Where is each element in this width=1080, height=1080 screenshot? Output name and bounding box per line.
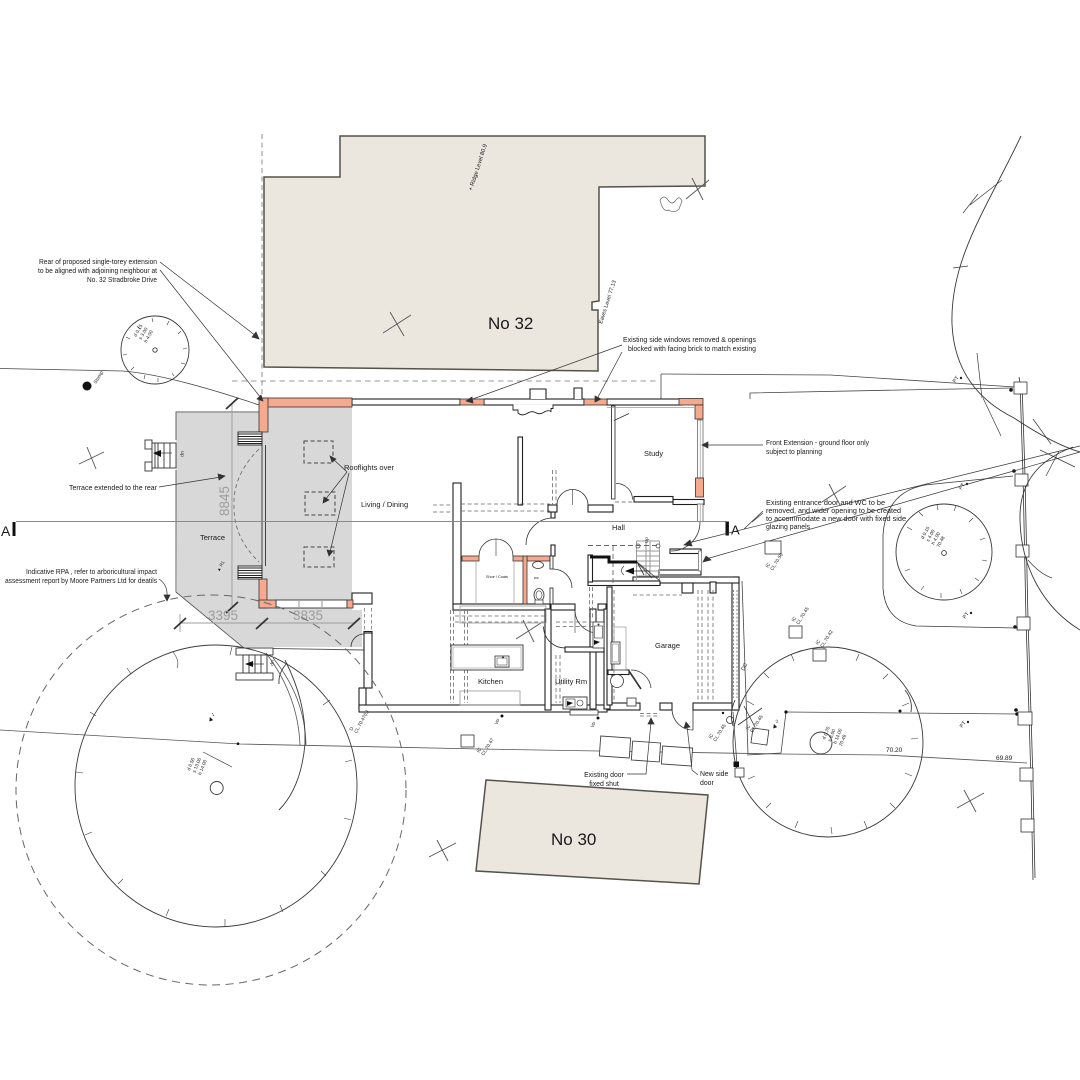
svg-text:Rooflights over: Rooflights over	[344, 463, 395, 472]
svg-text:door: door	[700, 780, 714, 787]
svg-text:subject to planning: subject to planning	[766, 449, 822, 456]
svg-text:70.20: 70.20	[886, 747, 903, 754]
svg-text:No 32: No 32	[488, 314, 533, 333]
svg-text:Kitchen: Kitchen	[478, 677, 503, 686]
svg-text:3395: 3395	[208, 608, 238, 623]
svg-text:Living / Dining: Living / Dining	[361, 500, 408, 509]
svg-text:Up: Up	[180, 451, 185, 457]
svg-text:No 30: No 30	[551, 830, 596, 849]
svg-text:No. 32 Stradbroke Drive: No. 32 Stradbroke Drive	[87, 277, 157, 284]
svg-text:69.89: 69.89	[996, 755, 1013, 762]
svg-text:Shoe / Coats: Shoe / Coats	[486, 575, 508, 579]
svg-text:blocked with facing brick to m: blocked with facing brick to match exist…	[628, 346, 756, 353]
svg-text:Up: Up	[644, 537, 649, 543]
svg-text:Terrace extended to the rear: Terrace extended to the rear	[69, 485, 158, 492]
svg-text:to be aligned with adjoining n: to be aligned with adjoining neighbour a…	[38, 268, 157, 275]
svg-text:Indicative RPA , refer to arbo: Indicative RPA , refer to arboricultural…	[26, 569, 157, 576]
svg-text:Study: Study	[644, 449, 663, 458]
svg-text:assessment report by Moore Par: assessment report by Moore Partners Ltd …	[5, 578, 158, 585]
svg-text:New side: New side	[700, 771, 729, 778]
svg-text:Existing door: Existing door	[584, 772, 625, 779]
svg-text:Front Extension - ground floor: Front Extension - ground floor only	[766, 440, 870, 447]
svg-text:wc: wc	[534, 576, 539, 580]
svg-text:Terrace: Terrace	[200, 533, 225, 542]
svg-text:A: A	[1, 523, 11, 539]
svg-text:Rear of proposed single-torey: Rear of proposed single-torey extension	[39, 259, 157, 266]
svg-text:Existing side windows removed: Existing side windows removed & openings	[623, 337, 757, 344]
svg-text:Hall: Hall	[612, 523, 625, 532]
svg-text:Utility Rm: Utility Rm	[555, 677, 587, 686]
svg-text:glazing panels: glazing panels	[766, 524, 811, 531]
svg-text:8845: 8845	[217, 486, 232, 516]
svg-text:Existing entrance door and WC: Existing entrance door and WC to be	[766, 500, 885, 507]
svg-text:A: A	[731, 523, 740, 538]
svg-text:Garage: Garage	[655, 641, 680, 650]
svg-text:fixed shut: fixed shut	[589, 781, 619, 788]
